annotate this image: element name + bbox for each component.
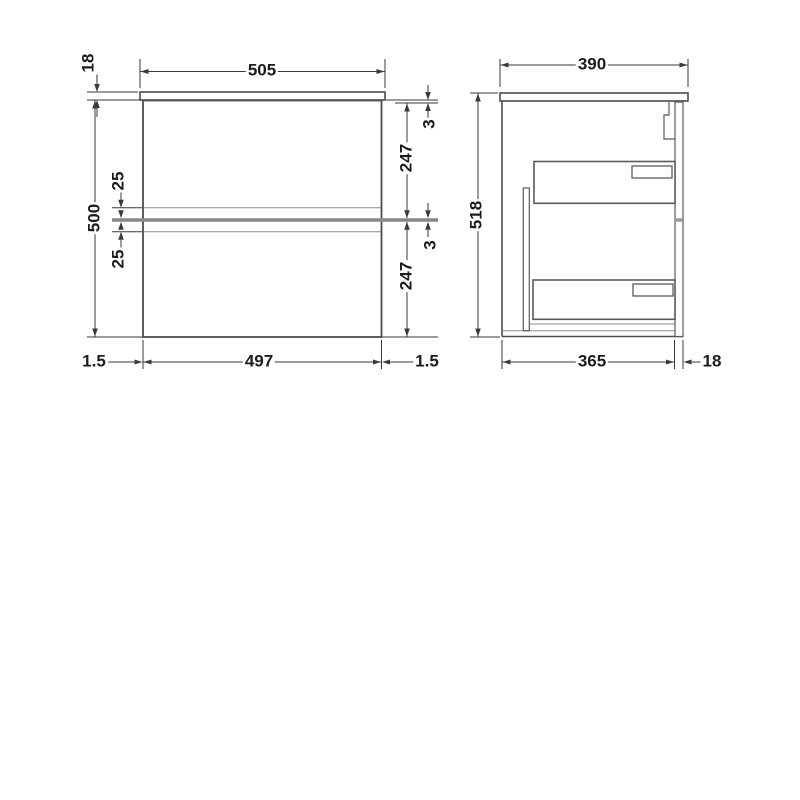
side-bracket-profile [664,101,675,139]
side-countertop [500,93,688,101]
vanity-technical-drawing: 505 18 500 25 25 3 247 3 247 1.5 497 1.5… [0,0,800,800]
front-view [87,59,438,369]
dim-front-cabinet-height: 500 [86,202,105,234]
side-back-panel-strip [523,188,529,331]
dim-front-groove-offset-bottom: 25 [110,248,129,271]
dim-front-lower-drawer-height: 247 [398,260,417,292]
dim-side-countertop-depth: 390 [576,56,608,75]
dim-side-cabinet-depth: 365 [576,353,608,372]
dim-front-countertop-width: 505 [246,62,278,81]
dim-front-upper-drawer-height: 247 [398,142,417,174]
dim-front-drawer-front-width: 497 [243,353,275,372]
dim-front-groove-offset-top: 25 [110,170,129,193]
dim-side-total-height: 518 [468,199,487,231]
drawing-geometry [0,0,800,800]
upper-drawer-handle [632,166,672,178]
side-view-dimensions [470,59,702,369]
lower-drawer-handle [633,284,673,296]
dim-front-mid-gap: 3 [422,238,441,251]
dim-front-side-gap-left: 1.5 [80,353,108,372]
front-view-outline [140,92,385,337]
dim-front-countertop-thickness: 18 [80,52,99,75]
side-view-outline [500,93,688,337]
side-drawer-front-gap [675,218,683,221]
dim-front-top-gap: 3 [421,117,440,130]
front-countertop [140,92,385,100]
dim-front-side-gap-right: 1.5 [413,353,441,372]
side-view [470,59,702,369]
dim-side-front-panel-thickness: 18 [701,353,724,372]
